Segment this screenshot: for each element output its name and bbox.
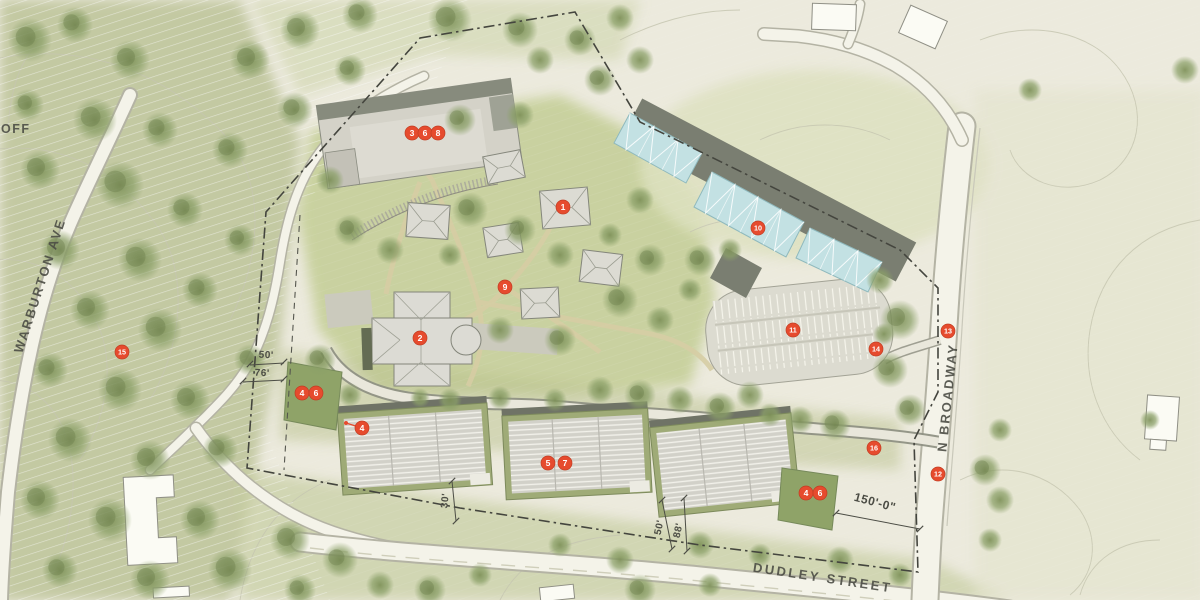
plan-marker-4: 4 — [295, 386, 309, 400]
keynote-number: 8 — [436, 128, 441, 138]
keynote-number: 2 — [418, 333, 423, 343]
plan-marker-11: 11 — [786, 323, 800, 337]
dimension-50ft-north: 50' — [258, 350, 274, 362]
tree-canopy-blob — [626, 46, 654, 74]
tree-canopy-blob — [1171, 56, 1199, 84]
tree-canopy-blob — [758, 403, 782, 427]
keynote-number: 13 — [944, 327, 952, 336]
keynote-number: 5 — [546, 458, 551, 468]
tree-canopy-blob — [543, 388, 567, 412]
plan-marker-6: 6 — [418, 126, 432, 140]
plan-marker-6: 6 — [309, 386, 323, 400]
site-plan-canvas: 50' 76' 30' 50' 88' 150'-0" OFF WARBURTO… — [0, 0, 1200, 600]
plan-marker-1: 1 — [556, 200, 570, 214]
cottage-building — [520, 287, 560, 319]
tree-canopy-blob — [646, 306, 674, 334]
keynote-number: 6 — [423, 128, 428, 138]
tree-canopy-blob — [866, 266, 894, 294]
street-label-offramp: OFF — [1, 122, 31, 136]
tree-canopy-blob — [526, 46, 554, 74]
plaza-west — [324, 290, 373, 329]
tree-canopy-blob — [548, 533, 572, 557]
plan-marker-2: 2 — [413, 331, 427, 345]
tree-canopy-blob — [606, 4, 634, 32]
keynote-number: 7 — [563, 458, 568, 468]
tree-canopy-blob — [598, 223, 622, 247]
dimension-30ft: 30' — [439, 493, 452, 509]
keynote-number: 4 — [360, 423, 365, 433]
keynote-number: 12 — [934, 470, 942, 479]
tree-canopy-blob — [666, 386, 694, 414]
tree-canopy-blob — [316, 166, 344, 194]
tree-canopy-blob — [546, 241, 574, 269]
tree-canopy-blob — [438, 243, 462, 267]
tree-canopy-blob — [786, 406, 814, 434]
tree-canopy-blob — [486, 316, 514, 344]
keynote-number: 9 — [503, 282, 508, 292]
keynote-number: 16 — [870, 444, 878, 453]
tree-canopy-blob — [736, 381, 764, 409]
plan-marker-3: 3 — [405, 126, 419, 140]
tree-canopy-blob — [606, 546, 634, 574]
tree-canopy-blob — [410, 388, 430, 408]
plan-marker-12: 12 — [931, 467, 945, 481]
tree-canopy-blob — [376, 236, 404, 264]
keynote-number: 4 — [804, 488, 809, 498]
plan-marker-4: 4 — [799, 486, 813, 500]
tree-canopy-blob — [1018, 78, 1042, 102]
keynote-number: 6 — [818, 488, 823, 498]
tree-canopy-blob — [678, 278, 702, 302]
tree-canopy-blob — [698, 573, 722, 597]
plan-marker-13: 13 — [941, 324, 955, 338]
keynote-number: 14 — [872, 345, 880, 354]
keynote-number: 15 — [118, 348, 126, 357]
keynote-number: 4 — [300, 388, 305, 398]
plan-marker-14: 14 — [869, 342, 883, 356]
plan-marker-8: 8 — [431, 126, 445, 140]
hedge — [361, 328, 372, 370]
tree-canopy-blob — [626, 186, 654, 214]
plan-marker-6: 6 — [813, 486, 827, 500]
plan-marker-16: 16 — [867, 441, 881, 455]
plan-marker-5: 5 — [541, 456, 555, 470]
tree-canopy-blob — [988, 418, 1012, 442]
keynote-number: 6 — [314, 388, 319, 398]
cottage-building — [579, 250, 623, 287]
plan-marker-10: 10 — [751, 221, 765, 235]
keynote-number: 10 — [754, 224, 762, 233]
tree-canopy-blob — [986, 486, 1014, 514]
keynote-number: 11 — [789, 326, 797, 335]
dimension-76ft: 76' — [254, 368, 270, 380]
tree-canopy-blob — [366, 571, 394, 599]
tree-canopy-blob — [686, 531, 714, 559]
plan-marker-9: 9 — [498, 280, 512, 294]
tree-canopy-blob — [488, 386, 512, 410]
tree-canopy-blob — [338, 383, 362, 407]
tree-canopy-blob — [826, 546, 854, 574]
tree-canopy-blob — [506, 101, 534, 129]
tree-canopy-blob — [438, 388, 462, 412]
plan-marker-7: 7 — [558, 456, 572, 470]
keynote-number: 3 — [410, 128, 415, 138]
tree-canopy-blob — [1140, 410, 1160, 430]
tree-canopy-blob — [718, 238, 742, 262]
tree-canopy-blob — [468, 563, 492, 587]
tree-canopy-blob — [978, 528, 1002, 552]
cottage-building — [406, 203, 450, 240]
plan-marker-15: 15 — [115, 345, 129, 359]
tree-canopy-blob — [586, 376, 614, 404]
keynote-number: 1 — [561, 202, 566, 212]
